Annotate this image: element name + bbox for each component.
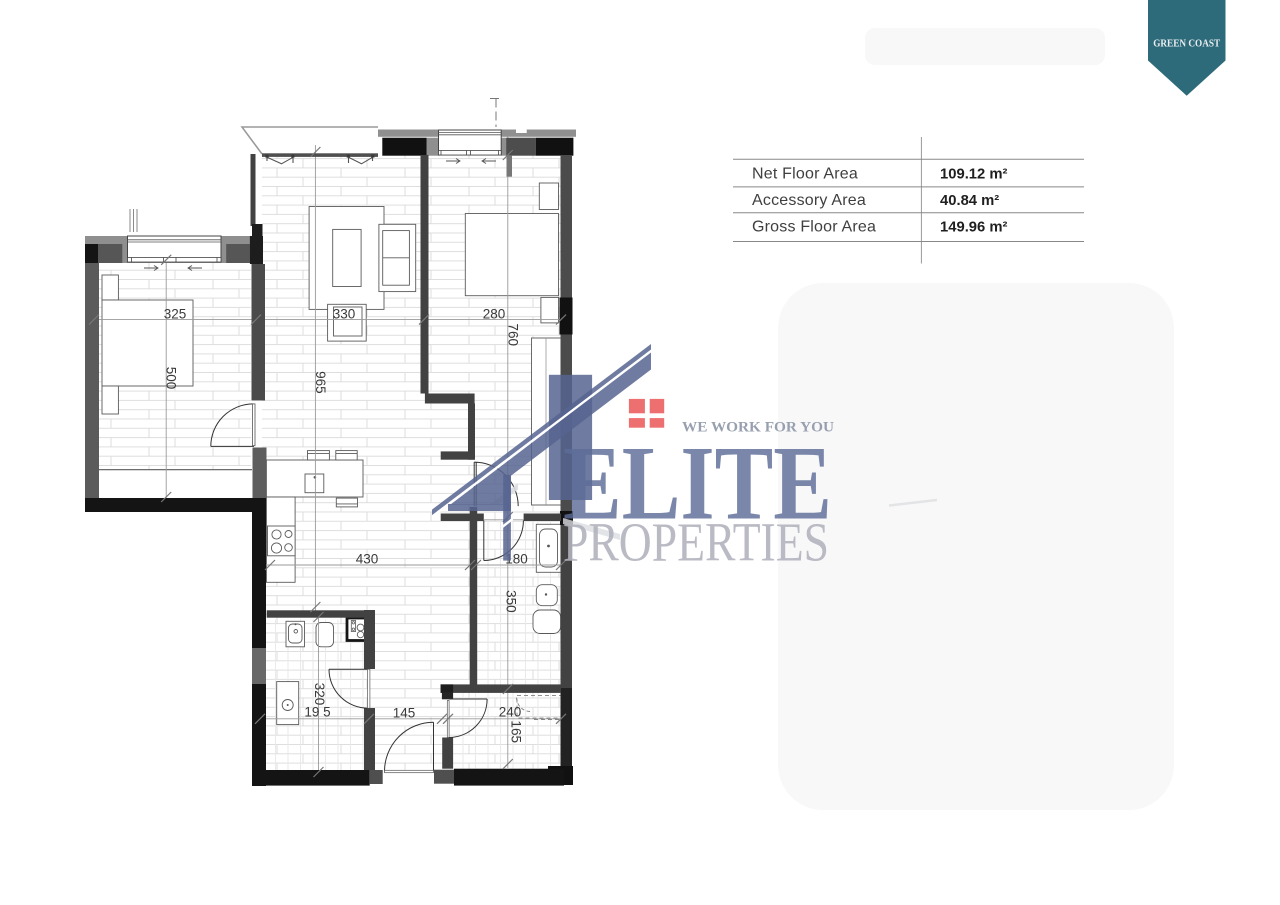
svg-text:965: 965 xyxy=(313,371,328,394)
svg-text:330: 330 xyxy=(333,307,356,322)
svg-text:GREEN COAST: GREEN COAST xyxy=(1153,39,1220,50)
svg-text:325: 325 xyxy=(164,307,187,322)
svg-text:320: 320 xyxy=(312,683,327,706)
svg-text:760: 760 xyxy=(505,323,520,346)
svg-text:Net Floor Area: Net Floor Area xyxy=(752,166,858,183)
svg-text:280: 280 xyxy=(483,307,506,322)
svg-text:430: 430 xyxy=(356,552,379,567)
svg-text:Accessory Area: Accessory Area xyxy=(752,192,866,209)
svg-text:Gross Floor Area: Gross Floor Area xyxy=(752,219,876,236)
svg-text:350: 350 xyxy=(504,590,519,613)
svg-text:19 5: 19 5 xyxy=(304,705,330,720)
svg-text:149.96 m²: 149.96 m² xyxy=(940,220,1008,236)
svg-text:145: 145 xyxy=(393,706,416,721)
svg-text:PROPERTIES: PROPERTIES xyxy=(563,512,829,573)
svg-text:40.84 m²: 40.84 m² xyxy=(940,193,999,209)
svg-text:500: 500 xyxy=(164,367,179,390)
svg-text:240: 240 xyxy=(499,705,522,720)
svg-text:165: 165 xyxy=(509,720,524,743)
svg-text:109.12 m²: 109.12 m² xyxy=(940,167,1008,183)
